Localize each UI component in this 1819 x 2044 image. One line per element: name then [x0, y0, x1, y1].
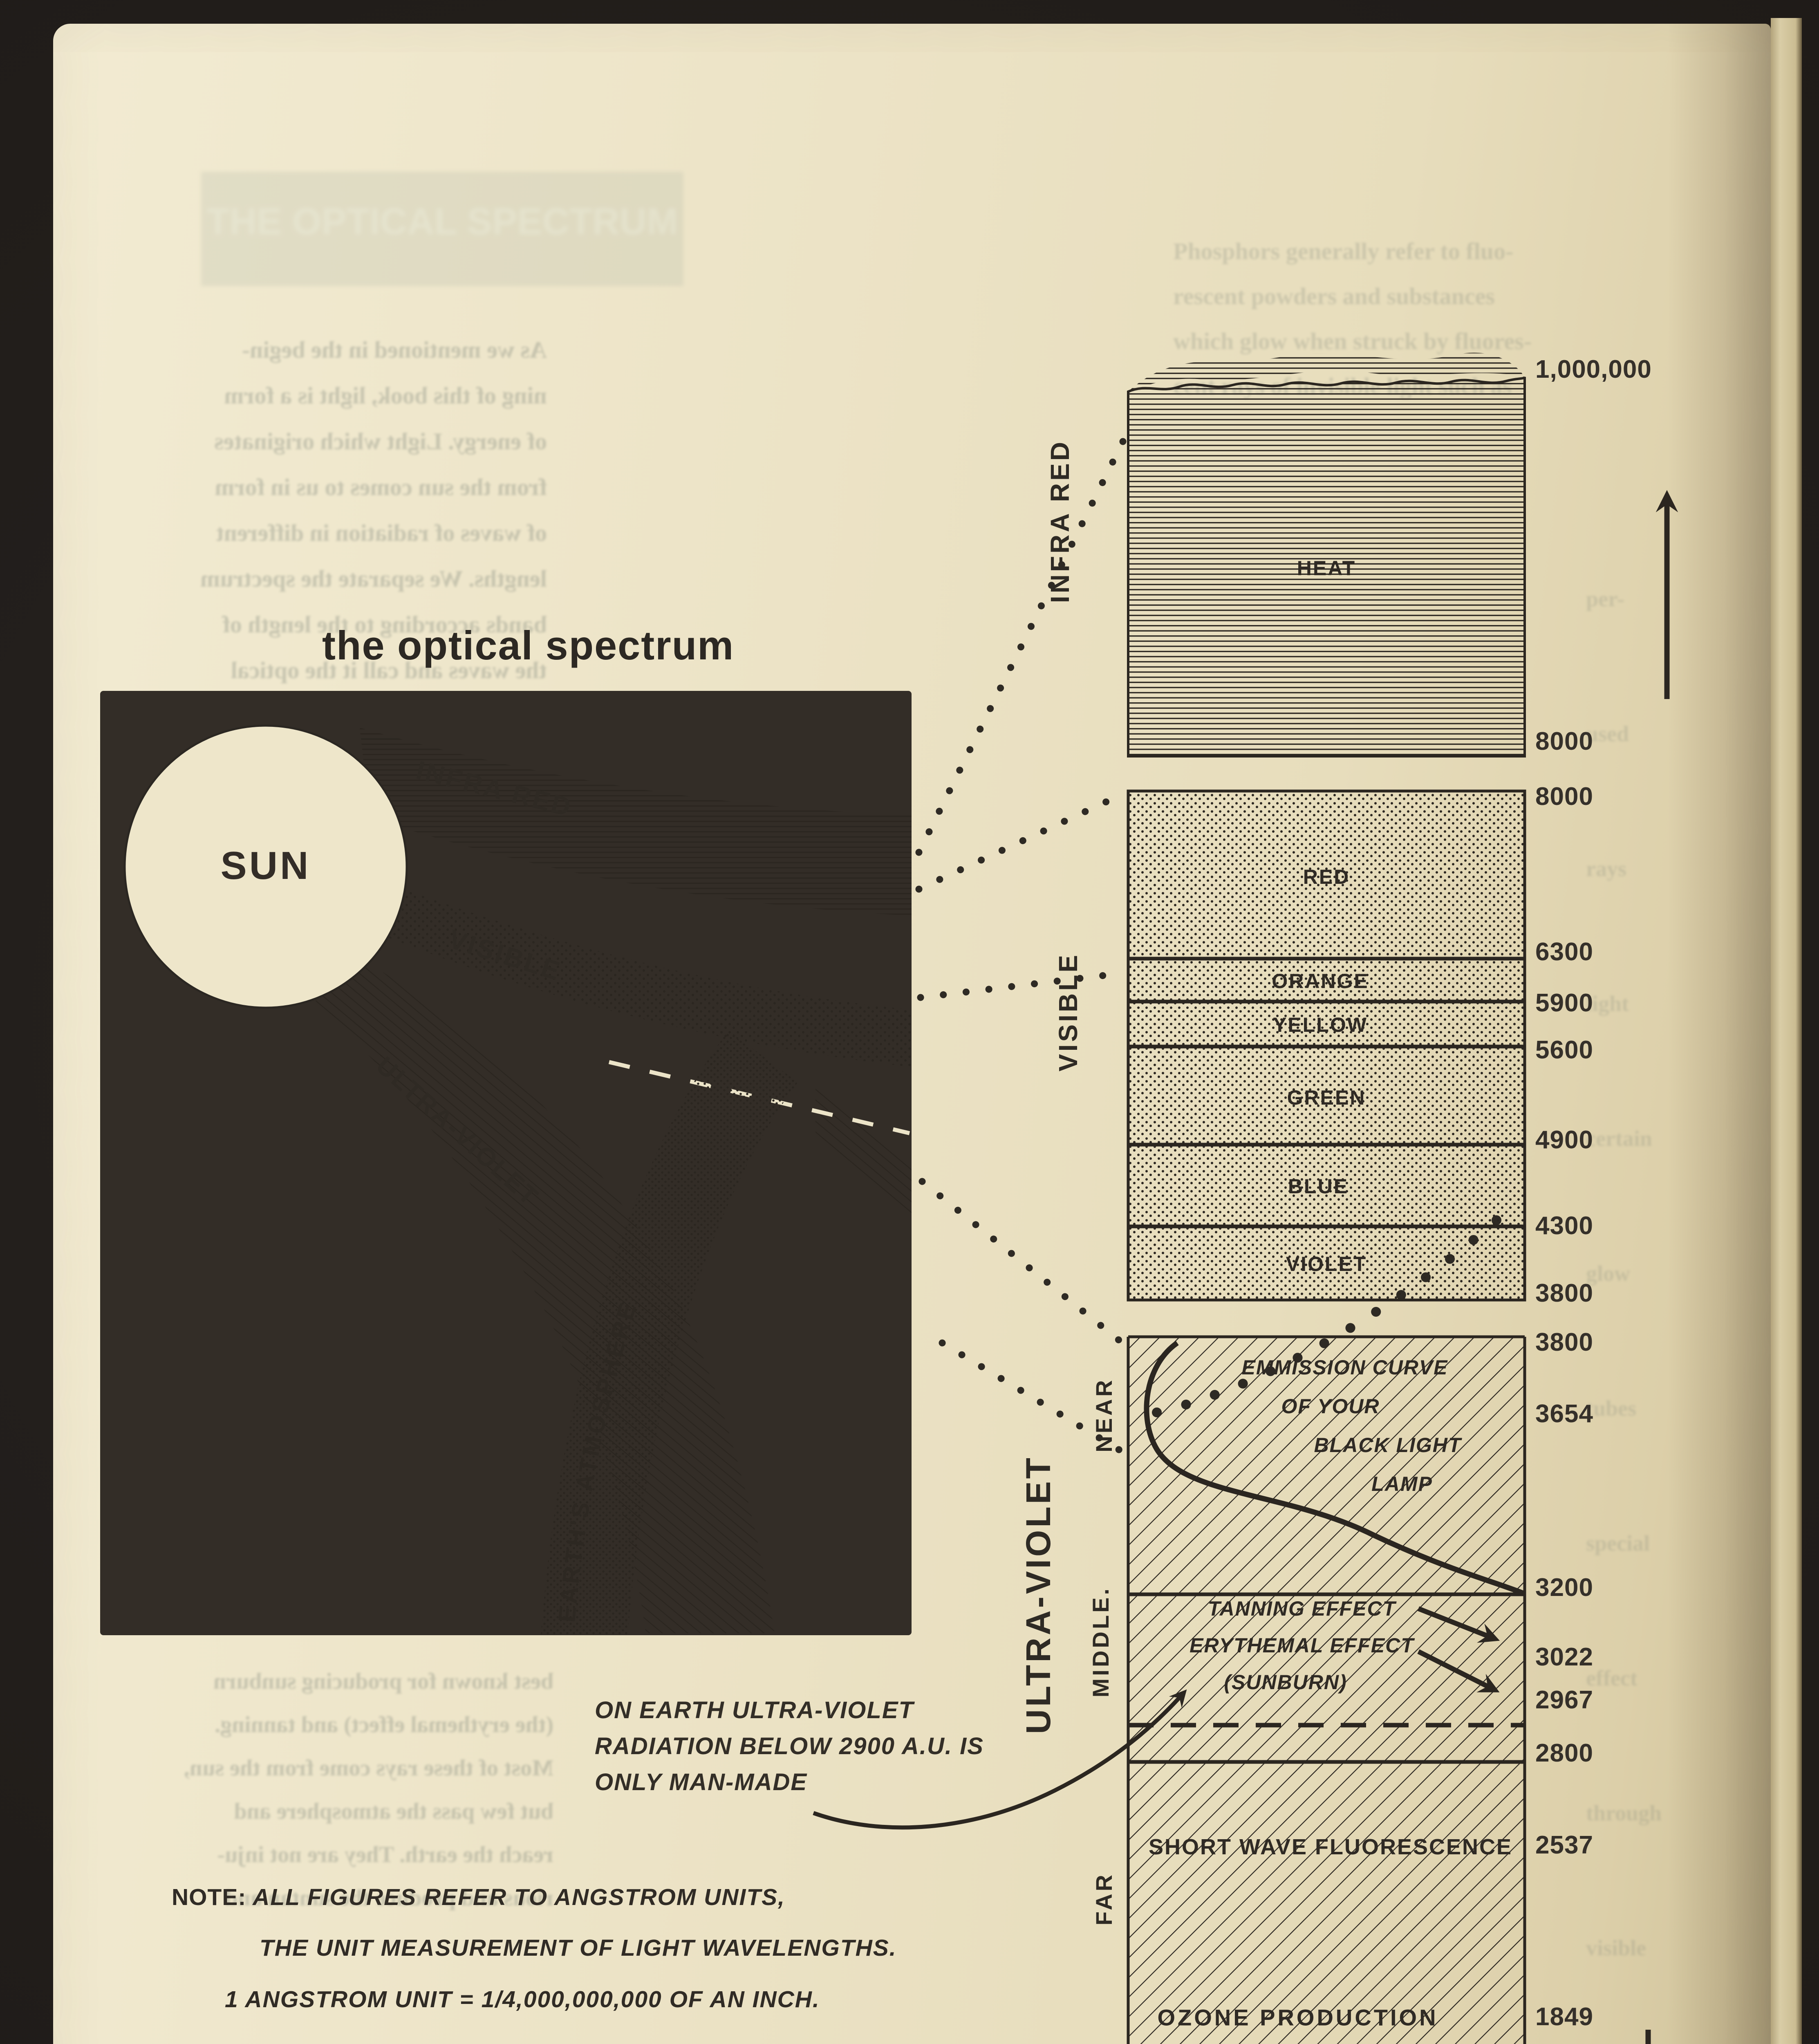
- annotation-black-light: BLACK LIGHT: [1314, 1433, 1462, 1457]
- tick-1849: 1849: [1535, 2002, 1593, 2031]
- annotation-emission-curve: EMMISSION CURVE: [1241, 1356, 1448, 1379]
- on-earth-note: ON EARTH ULTRA-VIOLET RADIATION BELOW 29…: [595, 1692, 984, 1800]
- section-label-blue: BLUE: [1288, 1174, 1349, 1198]
- annotation-ozone-production: OZONE PRODUCTION: [1157, 2004, 1438, 2031]
- tick-4900: 4900: [1535, 1125, 1593, 1154]
- tick-2967: 2967: [1535, 1685, 1593, 1715]
- annotation-short-wave-fluorescence: SHORT WAVE FLUORESCENCE: [1149, 1834, 1512, 1860]
- section-label-middle: MIDDLE.: [1087, 1586, 1114, 1697]
- page-fold-shadow: [1668, 24, 1771, 2044]
- band-label-infra-red: INFRA RED: [1045, 439, 1075, 603]
- section-label-heat: HEAT: [1297, 556, 1356, 580]
- section-label-near: NEAR: [1091, 1378, 1117, 1452]
- sun-label: SUN: [221, 843, 311, 888]
- tick-5900: 5900: [1535, 988, 1593, 1018]
- footnote-line3: 1 ANGSTROM UNIT = 1/4,000,000,000 OF AN …: [225, 1986, 897, 2013]
- annotation-sunburn: (SUNBURN): [1224, 1670, 1347, 1694]
- section-label-red: RED: [1303, 865, 1350, 889]
- footnote-prefix: NOTE:: [172, 1884, 246, 1910]
- tick-8000-vis: 8000: [1535, 782, 1593, 811]
- annotation-erythemal-effect: ERYTHEMAL EFFECT: [1190, 1634, 1414, 1657]
- tick-3800-uv: 3800: [1535, 1328, 1593, 1357]
- section-label-orange: ORANGE: [1272, 969, 1369, 993]
- next-page-edge: [1771, 18, 1802, 2044]
- band-label-visible: VISIBLE: [1053, 953, 1083, 1071]
- footnote-line1: ALL FIGURES REFER TO ANGSTROM UNITS,: [253, 1884, 785, 1910]
- footnote-line2: THE UNIT MEASUREMENT OF LIGHT WAVELENGTH…: [260, 1934, 897, 1961]
- tick-8000-ir: 8000: [1535, 727, 1593, 756]
- footnote: NOTE: ALL FIGURES REFER TO ANGSTROM UNIT…: [172, 1884, 897, 2013]
- section-label-yellow: YELLOW: [1273, 1013, 1368, 1037]
- page-title: the optical spectrum: [322, 622, 734, 669]
- tick-1000000: 1,000,000: [1535, 355, 1652, 384]
- tick-4300: 4300: [1535, 1211, 1593, 1240]
- tick-3800-vis: 3800: [1535, 1279, 1593, 1308]
- tick-3200: 3200: [1535, 1573, 1593, 1602]
- tick-3654: 3654: [1535, 1399, 1593, 1428]
- scan-background: THE OPTICAL SPECTRUM As we mentioned in …: [0, 0, 1819, 2044]
- section-label-far: FAR: [1091, 1872, 1117, 1925]
- annotation-lamp: LAMP: [1371, 1472, 1433, 1496]
- tick-3022: 3022: [1535, 1643, 1593, 1672]
- section-label-violet: VIOLET: [1286, 1252, 1367, 1276]
- section-label-green: GREEN: [1287, 1086, 1366, 1109]
- tick-5600: 5600: [1535, 1035, 1593, 1065]
- annotation-of-your: OF YOUR: [1281, 1394, 1380, 1418]
- tick-2800: 2800: [1535, 1739, 1593, 1768]
- annotation-tanning-effect: TANNING EFFECT: [1208, 1597, 1396, 1620]
- tick-2537: 2537: [1535, 1831, 1593, 1860]
- tick-6300: 6300: [1535, 937, 1593, 966]
- band-label-ultra-violet: ULTRA-VIOLET: [1019, 1455, 1058, 1734]
